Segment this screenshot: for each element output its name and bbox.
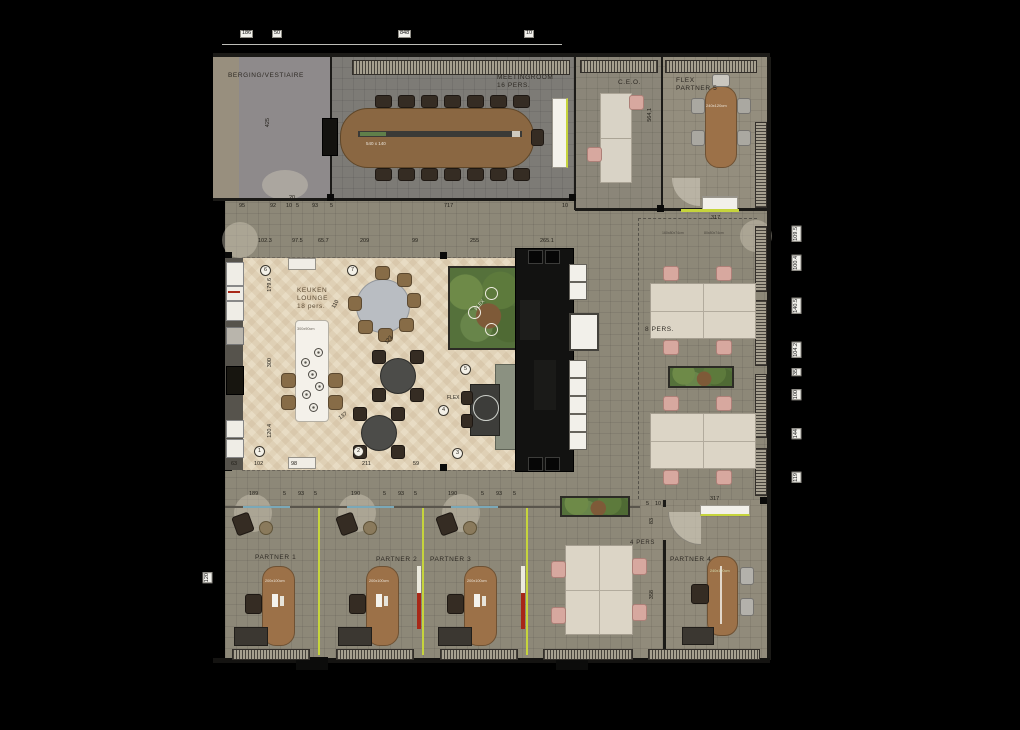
- room-label-partner1: PARTNER 1: [255, 554, 296, 562]
- glass-divider: [318, 508, 320, 655]
- dim: 99: [412, 239, 418, 245]
- chair: [716, 470, 732, 485]
- chair: [551, 561, 566, 578]
- chair: [663, 340, 679, 355]
- wall-panel-red: [521, 593, 525, 629]
- kitchen-appliance: [226, 301, 244, 321]
- zone-marker: 7: [347, 265, 358, 276]
- dim: 100: [792, 389, 802, 400]
- credenza: [682, 627, 714, 645]
- chair: [632, 604, 647, 621]
- conference-table: [340, 108, 534, 168]
- room-label-partner3: PARTNER 3: [430, 556, 471, 564]
- planter-large: [448, 266, 522, 350]
- desk-papers: [482, 596, 486, 606]
- dim: 186: [240, 30, 253, 38]
- dim: 93: [496, 492, 502, 498]
- desk-papers: [272, 594, 278, 607]
- chair: [410, 388, 424, 402]
- dim: 140.5: [792, 298, 802, 314]
- column: [440, 464, 447, 471]
- zone-marker: 6: [260, 265, 271, 276]
- dim: 92: [270, 204, 276, 210]
- radiator: [232, 649, 310, 660]
- desk-papers: [384, 596, 388, 606]
- dim: 179.6: [268, 278, 274, 292]
- desk-papers: [720, 566, 722, 624]
- desk-size: 200x100cm: [265, 580, 285, 584]
- chair: [398, 95, 415, 108]
- office-chair: [349, 594, 366, 614]
- dim: 144: [792, 428, 802, 439]
- wall-right: [767, 57, 771, 660]
- stool: [309, 403, 318, 412]
- chair: [716, 396, 732, 411]
- side-table-round: [463, 521, 477, 535]
- chair: [421, 95, 438, 108]
- kitchen-appliance: [226, 366, 244, 395]
- kitchen-appliance: [226, 286, 244, 301]
- radiator: [440, 649, 518, 660]
- dim: 190: [448, 492, 457, 498]
- chair: [391, 407, 405, 421]
- desk-papers: [376, 594, 382, 607]
- dim: 425: [266, 118, 272, 127]
- room-label-partner4: PARTNER 4: [670, 556, 711, 564]
- island-size: 300x90cm: [297, 328, 315, 332]
- dim: 5: [314, 492, 317, 498]
- window-hatch: [580, 60, 658, 73]
- room-label-flex5-line1: FLEX: [676, 77, 717, 85]
- chair: [740, 567, 754, 585]
- spot-ring: [485, 323, 498, 336]
- chair: [663, 396, 679, 411]
- dim: 63: [231, 462, 237, 468]
- dim: 358: [650, 590, 656, 599]
- dim: 104.2: [792, 342, 802, 358]
- dim: 120.4: [268, 424, 274, 438]
- chair: [691, 130, 705, 146]
- chair: [391, 445, 405, 459]
- room-label-flex5-line2: PARTNER 5: [676, 85, 717, 93]
- room-label-keuken-line2: LOUNGE: [297, 295, 328, 303]
- dim: 97.5: [292, 239, 303, 245]
- room-label-keuken-line3: 18 pers.: [297, 303, 328, 311]
- stool: [461, 391, 473, 405]
- room-label-meeting-line2: 16 PERS.: [497, 82, 553, 90]
- cable-tray-end: [512, 131, 520, 137]
- room-label-berging: BERGING/VESTIAIRE: [228, 72, 304, 80]
- radiator: [648, 649, 760, 660]
- dim: 211: [362, 462, 371, 468]
- wc-stall: [569, 264, 587, 282]
- dim: 317: [711, 216, 720, 222]
- kitchen-appliance: [226, 439, 244, 458]
- chair: [587, 147, 602, 162]
- flex5-table: [705, 86, 737, 168]
- chair: [375, 95, 392, 108]
- planter: [560, 496, 630, 517]
- kitchen-appliance: [226, 420, 244, 438]
- chair: [372, 388, 386, 402]
- window-hatch: [352, 60, 570, 75]
- chair: [716, 340, 732, 355]
- chair: [398, 168, 415, 181]
- room-label-keuken-line1: KEUKEN: [297, 287, 328, 295]
- glass-divider: [526, 508, 528, 655]
- dim-spec: 160x80x74cm: [662, 232, 684, 236]
- zone-marker: 1: [254, 446, 265, 457]
- chair: [740, 598, 754, 616]
- chair: [629, 95, 644, 110]
- dim: 848: [398, 30, 411, 38]
- dim: 93: [398, 492, 404, 498]
- desk-size: 200x100cm: [467, 580, 487, 584]
- chair: [663, 470, 679, 485]
- dim: 102: [254, 462, 263, 468]
- stool: [301, 358, 310, 367]
- flex-booth-label: FLEX: [447, 396, 460, 401]
- dim: 95: [239, 204, 245, 210]
- chair: [375, 266, 390, 280]
- room-label-partner2: PARTNER 2: [376, 556, 417, 564]
- dim: 10: [524, 30, 534, 38]
- lounge-chair: [328, 373, 343, 388]
- wc-stall: [569, 432, 587, 450]
- chair: [632, 558, 647, 575]
- wall: [574, 57, 576, 210]
- wc-stall: [569, 282, 587, 300]
- wall-top: [213, 53, 770, 57]
- desk-papers: [280, 596, 284, 606]
- zone-marker: 3: [452, 448, 463, 459]
- chair: [691, 98, 705, 114]
- chair: [407, 293, 421, 308]
- side-table-round: [363, 521, 377, 535]
- lounge-chair: [328, 395, 343, 410]
- core-detail: [520, 300, 540, 340]
- dim: 109.5: [792, 226, 802, 242]
- stool: [461, 414, 473, 428]
- dim: 59: [413, 462, 419, 468]
- dim: 20: [289, 196, 295, 202]
- chair: [358, 320, 373, 334]
- dim: 65.7: [318, 239, 329, 245]
- chair: [513, 95, 530, 108]
- room-label-meeting: MEETINGROOM 16 PERS.: [497, 74, 553, 90]
- chair: [490, 168, 507, 181]
- chair: [513, 168, 530, 181]
- kitchen-appliance: [226, 262, 244, 286]
- stool: [314, 348, 323, 357]
- wall-panel-red: [417, 593, 421, 629]
- chair: [444, 168, 461, 181]
- stool: [308, 370, 317, 379]
- side-table-round: [259, 521, 273, 535]
- column: [760, 497, 767, 504]
- accent-strip-green: [681, 209, 739, 212]
- dim: 10: [562, 204, 568, 210]
- room-label-4pers: 4 PERS: [630, 540, 655, 548]
- desk-bank: [565, 545, 633, 635]
- dim: 5: [414, 492, 417, 498]
- wc-stall: [569, 396, 587, 414]
- side-table: [322, 118, 338, 156]
- column: [327, 194, 334, 201]
- dim: 189: [249, 492, 258, 498]
- wall: [661, 57, 663, 210]
- conference-table-size: 540 x 140: [366, 142, 386, 147]
- dim: 300: [268, 358, 274, 367]
- dim: 265.1: [540, 239, 554, 245]
- dim: 5: [383, 492, 386, 498]
- dim: 100.4: [792, 255, 802, 271]
- wc-stall: [569, 378, 587, 396]
- chair: [375, 168, 392, 181]
- chair: [399, 318, 414, 332]
- dim: 119: [792, 472, 802, 483]
- dim: 5: [646, 502, 649, 508]
- credenza: [234, 627, 268, 646]
- wc-stall: [569, 414, 587, 432]
- window-hatch: [665, 60, 757, 73]
- credenza: [438, 627, 472, 646]
- high-table: [288, 258, 316, 270]
- chair: [467, 95, 484, 108]
- rug: [262, 170, 308, 200]
- room-label-8pers: 8 PERS.: [645, 326, 674, 334]
- desk-size: 200x100cm: [369, 580, 389, 584]
- office-chair: [691, 584, 709, 604]
- chair: [372, 350, 386, 364]
- dim: 564,1: [648, 108, 654, 122]
- partner4-left-wall-top: [663, 500, 666, 507]
- dim: 102.3: [258, 239, 272, 245]
- window-hatch: [755, 122, 767, 208]
- room-label-keuken: KEUKEN LOUNGE 18 pers.: [297, 287, 328, 311]
- whiteboard: [700, 505, 750, 516]
- elevator: [528, 250, 543, 264]
- room-label-flex5: FLEX PARTNER 5: [676, 77, 717, 93]
- flex-booth-table: [473, 395, 499, 421]
- glass-front: [243, 506, 290, 508]
- dim: 209: [360, 239, 369, 245]
- dim: 98: [291, 462, 297, 468]
- column: [657, 205, 664, 212]
- stool: [315, 382, 324, 391]
- elevator: [545, 250, 560, 264]
- chair: [490, 95, 507, 108]
- dim: 93: [312, 204, 318, 210]
- wall: [575, 208, 770, 211]
- chair: [737, 130, 751, 146]
- chair: [467, 168, 484, 181]
- partner-desk: [707, 556, 738, 636]
- desk-papers: [474, 594, 480, 607]
- elevator: [545, 457, 560, 471]
- ceo-desk: [600, 93, 632, 183]
- chair: [421, 168, 438, 181]
- chair: [410, 350, 424, 364]
- dim: 83: [650, 518, 656, 524]
- shower-unit: [569, 313, 599, 351]
- dim: 50: [272, 30, 282, 38]
- glass-front: [451, 506, 498, 508]
- dim: 93: [298, 492, 304, 498]
- glass-divider: [422, 508, 424, 655]
- radiator: [336, 649, 414, 660]
- wc-stall: [569, 360, 587, 378]
- wall-panel-white: [521, 566, 525, 593]
- kitchen-appliance: [226, 327, 244, 345]
- flex5-table-size: 240x120cm: [706, 104, 727, 108]
- planter: [668, 366, 734, 388]
- dim: 717: [444, 204, 453, 210]
- dim: 255: [470, 239, 479, 245]
- core-detail: [534, 360, 556, 410]
- column: [569, 194, 576, 201]
- floorplan-canvas: 540 x 140 240x120cm 300x90cm: [0, 0, 1020, 730]
- dim: 5: [296, 204, 299, 210]
- room-label-ceo: C.E.O.: [618, 79, 641, 87]
- lounge-chair: [281, 373, 296, 388]
- desk-bank: [650, 413, 756, 469]
- dim-line-top: [222, 44, 562, 45]
- chair: [716, 266, 732, 281]
- spot-ring: [485, 287, 498, 300]
- chair: [444, 95, 461, 108]
- elevator: [528, 457, 543, 471]
- wall-panel-white: [417, 566, 421, 593]
- wall: [213, 198, 575, 201]
- dim: 5: [330, 204, 333, 210]
- zone-marker: 2: [353, 446, 364, 457]
- dim: 5: [283, 492, 286, 498]
- column: [440, 252, 447, 259]
- glass-front: [347, 506, 394, 508]
- chair: [531, 129, 544, 146]
- dim: 10: [655, 502, 661, 508]
- chair: [551, 607, 566, 624]
- dim: 10: [286, 204, 292, 210]
- radiator: [543, 649, 633, 660]
- office-chair: [245, 594, 262, 614]
- partner4-left-wall: [663, 540, 666, 655]
- dim: 5: [513, 492, 516, 498]
- zone-marker: 5: [460, 364, 471, 375]
- dim: 35: [792, 368, 802, 376]
- chair: [737, 98, 751, 114]
- dim: 120: [203, 572, 213, 583]
- credenza: [338, 627, 372, 646]
- appliance-red-mark: [228, 291, 240, 293]
- office-chair: [447, 594, 464, 614]
- dim: 5: [481, 492, 484, 498]
- room-label-meeting-line1: MEETINGROOM: [497, 74, 553, 82]
- lounge-chair: [281, 395, 296, 410]
- desk-size: 240x120cm: [710, 570, 730, 574]
- zone-marker: 4: [438, 405, 449, 416]
- cable-tray-green: [360, 132, 386, 136]
- chair: [663, 266, 679, 281]
- chair: [353, 407, 367, 421]
- dim: 190: [351, 492, 360, 498]
- chair: [397, 273, 412, 287]
- dim: 317: [710, 497, 719, 503]
- dim-spec: 80x80x74cm: [704, 232, 724, 236]
- whiteboard: [552, 98, 568, 168]
- chair: [348, 296, 362, 311]
- stool: [302, 390, 311, 399]
